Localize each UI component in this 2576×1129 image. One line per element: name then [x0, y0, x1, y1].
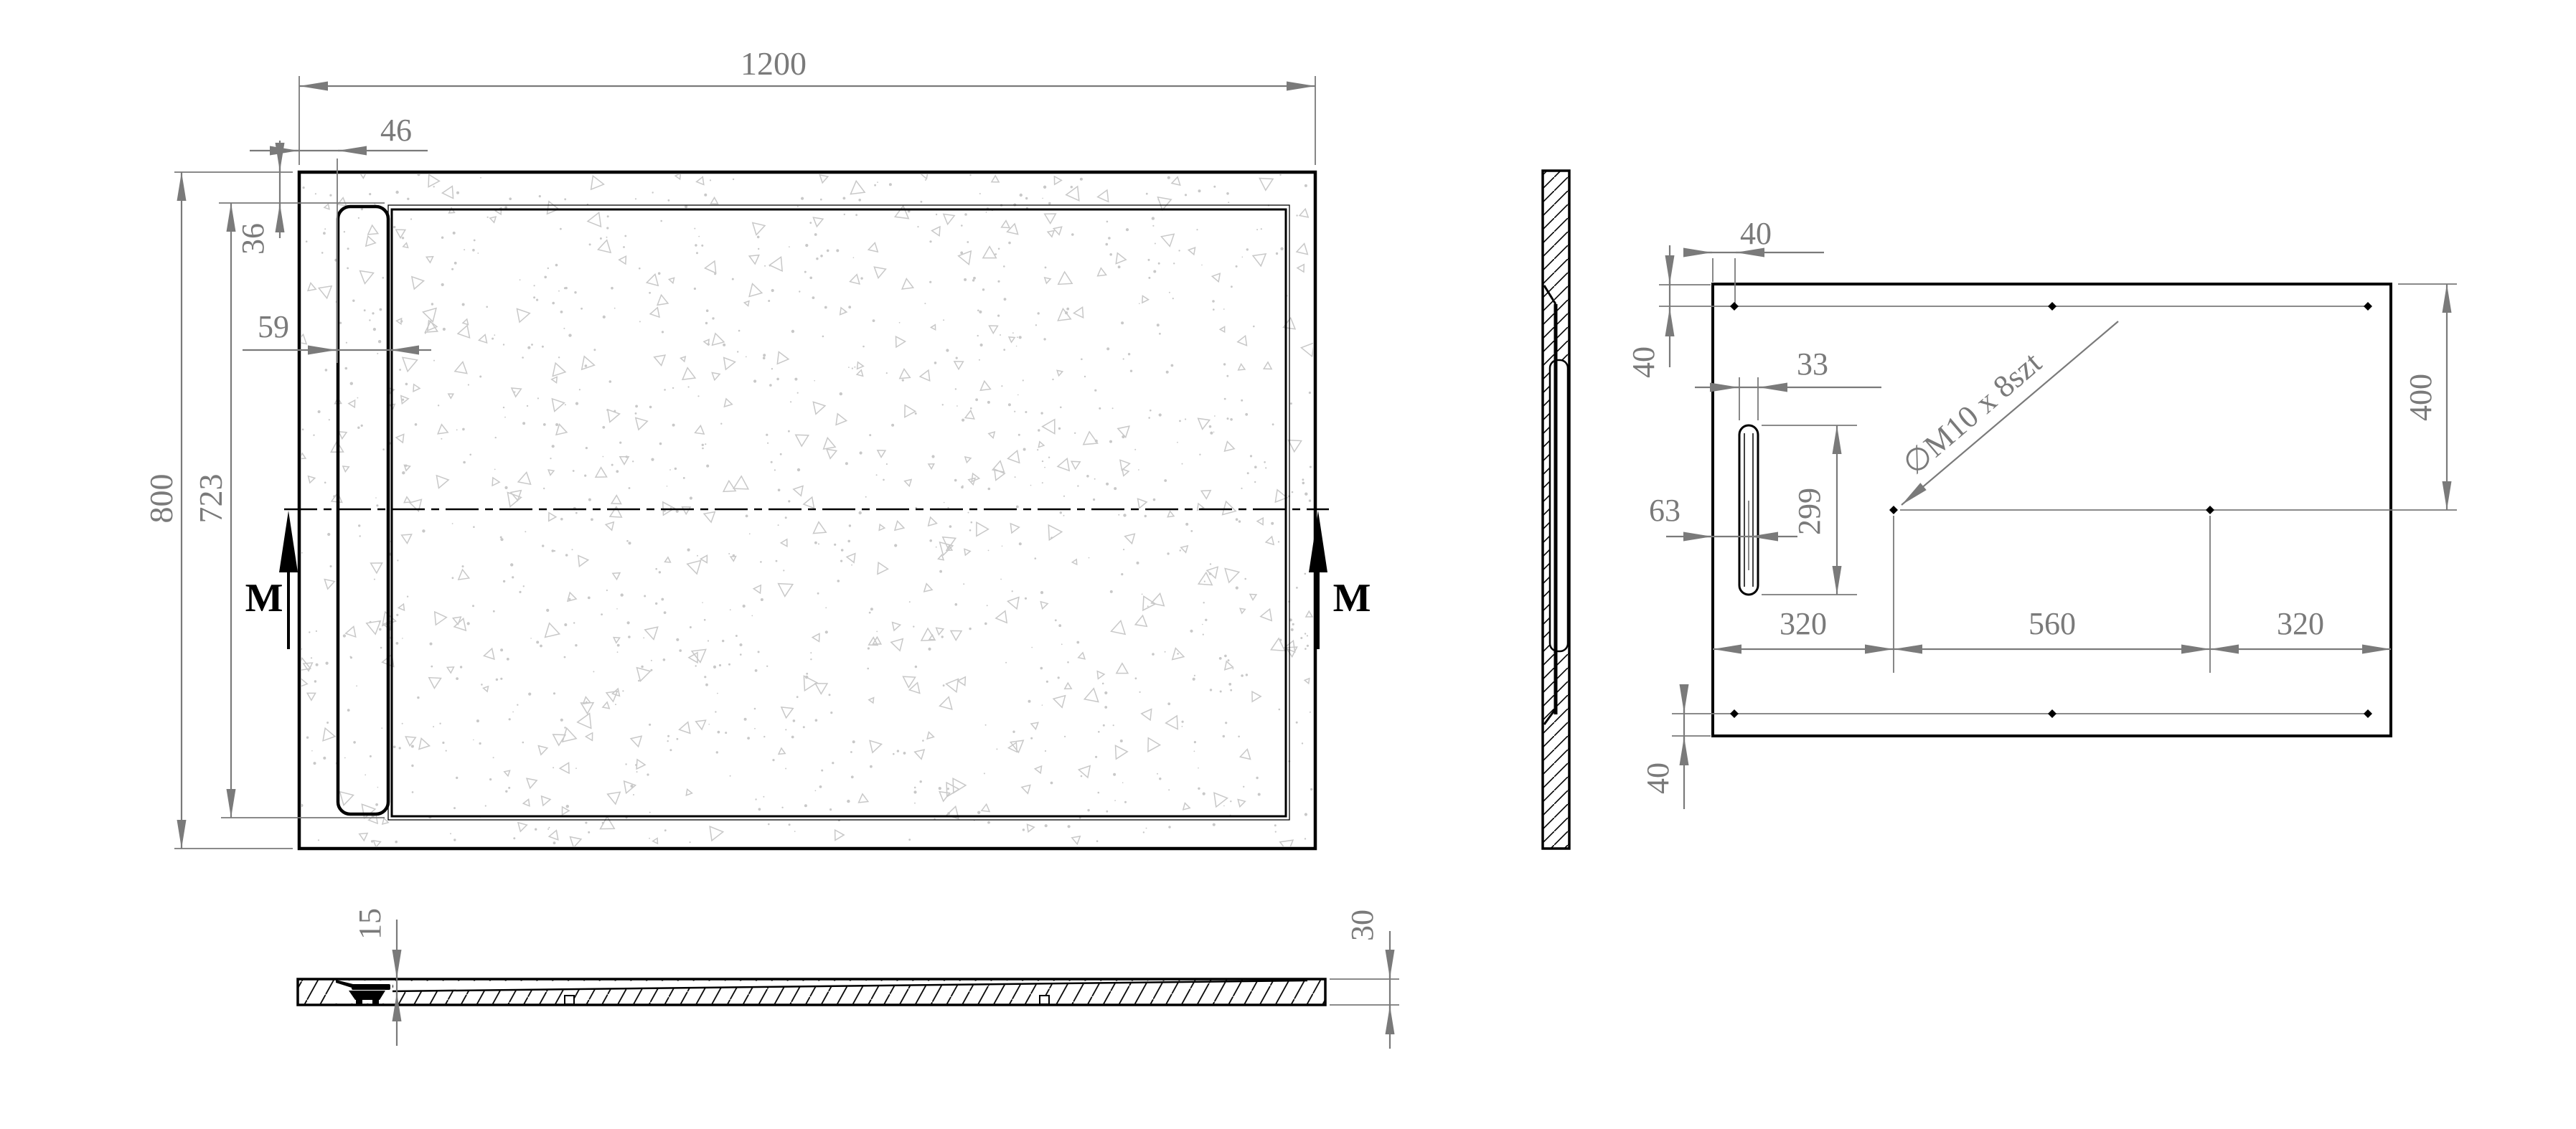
side-view — [1543, 171, 1569, 849]
dim-63-label: 63 — [1649, 493, 1680, 528]
dim-basin-depth: 15 — [352, 908, 397, 1046]
shower-tray-drawing: M M 1200 46 36 59 — [0, 0, 2576, 1129]
mount-notch-left — [565, 996, 574, 1004]
section-marker-right: M — [1333, 576, 1371, 620]
plan-view: M M 1200 46 36 59 — [143, 45, 1371, 852]
back-view: 40 40 33 63 299 — [1626, 216, 2457, 809]
dim-30-label: 30 — [1345, 910, 1380, 941]
dim-15-label: 15 — [352, 908, 387, 940]
dim-overall-width: 1200 — [299, 45, 1315, 165]
dim-corner-offset-h: 40 — [1684, 216, 1824, 252]
dim-mid-row-offset: 400 — [2403, 284, 2447, 510]
dim-1200-label: 1200 — [741, 45, 807, 82]
dim-723-label: 723 — [192, 474, 229, 524]
dim-320-left-label: 320 — [1780, 606, 1827, 641]
section-view: 15 30 — [298, 908, 1399, 1049]
drain-cover — [338, 207, 388, 814]
dim-299-label: 299 — [1792, 488, 1827, 535]
back-drain-slot — [1739, 425, 1758, 595]
dim-inner-height: 723 — [192, 203, 385, 818]
dim-59-label: 59 — [258, 309, 289, 344]
drain-trap-detail — [335, 980, 392, 1004]
stone-texture-speckles — [296, 170, 1320, 853]
technical-drawing-page: M M 1200 46 36 59 — [0, 0, 2576, 1129]
dim-rim-top: 36 — [219, 141, 385, 255]
inner-basin-rim-line — [388, 205, 1289, 820]
dim-33-label: 33 — [1797, 346, 1828, 382]
dim-top-row-offset: 40 — [1626, 245, 1670, 378]
dim-bottom-row-offset: 40 — [1640, 687, 1684, 809]
dim-40h-label: 40 — [1740, 216, 1772, 251]
section-arrow-right — [1309, 511, 1327, 649]
dim-800-label: 800 — [143, 474, 179, 524]
dim-400-label: 400 — [2403, 374, 2438, 421]
inner-basin-outline — [392, 209, 1286, 816]
mount-notch-right — [1040, 996, 1049, 1004]
dim-320-right-label: 320 — [2277, 606, 2324, 641]
dim-46-label: 46 — [380, 113, 412, 148]
dim-560-label: 560 — [2029, 606, 2076, 641]
dim-edge-thickness: 30 — [1330, 910, 1399, 1049]
dim-36-label: 36 — [235, 223, 271, 255]
dim-40v-top-label: 40 — [1626, 346, 1661, 378]
dim-40v-bottom-label: 40 — [1640, 762, 1675, 794]
section-marker-left: M — [245, 576, 283, 620]
side-drain-cover-edge — [1550, 360, 1568, 651]
